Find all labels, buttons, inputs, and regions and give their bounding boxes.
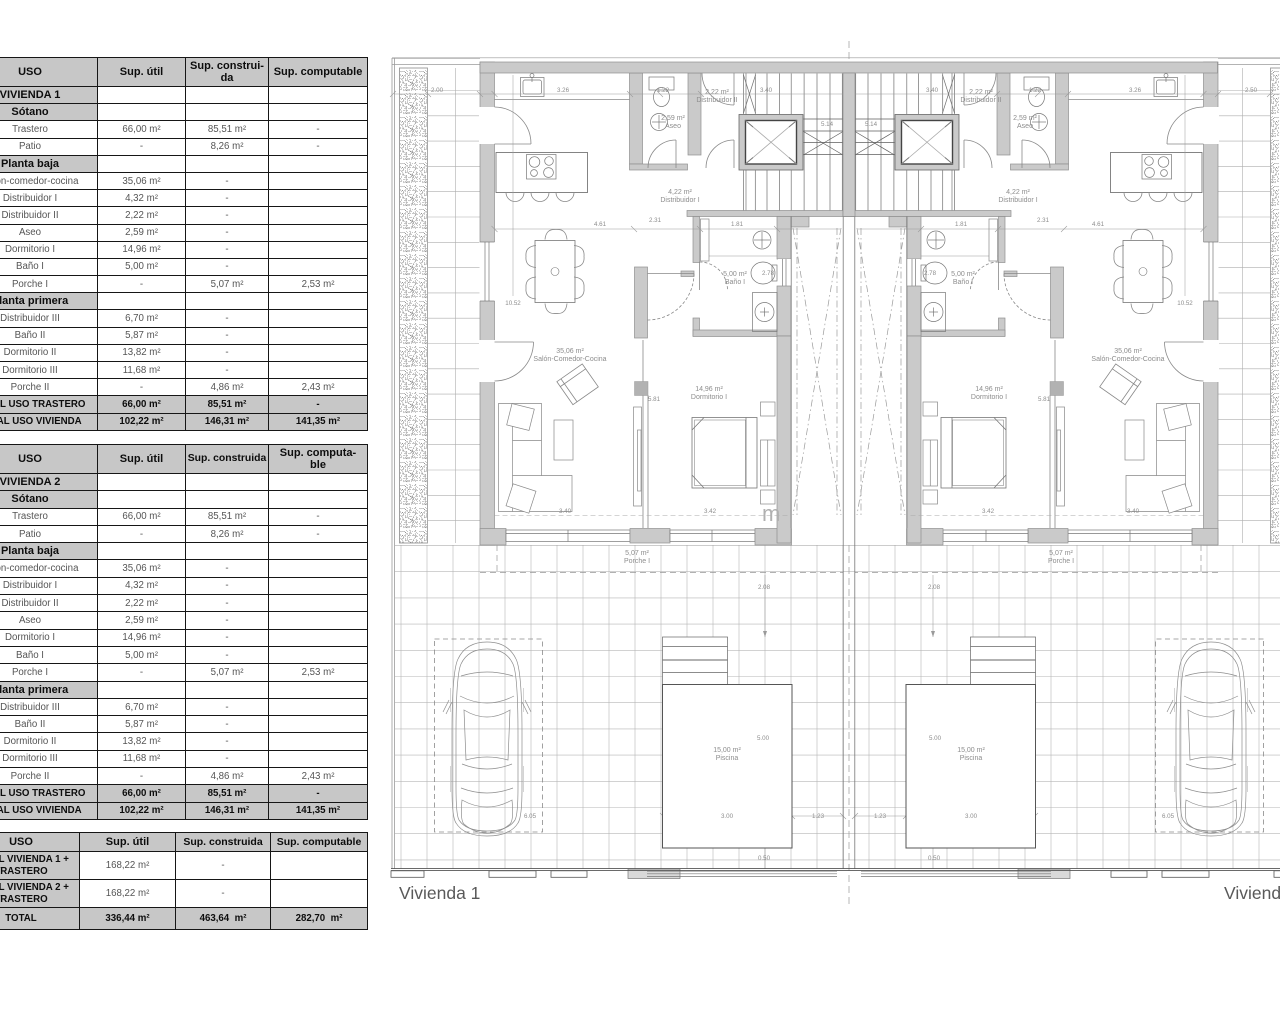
svg-text:Vivienda 2: Vivienda 2 xyxy=(1224,883,1280,903)
svg-text:15,00 m²: 15,00 m² xyxy=(713,747,741,754)
svg-text:Dormitorio I: Dormitorio I xyxy=(971,394,1007,401)
svg-text:Distribuidor I: Distribuidor I xyxy=(660,197,699,204)
svg-text:Distribuidor I: Distribuidor I xyxy=(998,197,1037,204)
svg-text:5,07 m²: 5,07 m² xyxy=(625,550,649,557)
svg-text:3.26: 3.26 xyxy=(557,87,570,94)
svg-text:1.22: 1.22 xyxy=(1029,87,1042,94)
svg-text:5.81: 5.81 xyxy=(1038,396,1051,403)
svg-text:4.61: 4.61 xyxy=(1092,221,1105,228)
svg-text:Porche I: Porche I xyxy=(624,558,650,565)
svg-text:Vivienda 1: Vivienda 1 xyxy=(399,883,480,903)
svg-text:3.26: 3.26 xyxy=(1129,87,1142,94)
svg-text:5,00 m²: 5,00 m² xyxy=(723,271,747,278)
svg-text:Baño I: Baño I xyxy=(725,279,745,286)
svg-text:14,96 m²: 14,96 m² xyxy=(695,386,723,393)
svg-text:Distribuidor II: Distribuidor II xyxy=(696,97,737,104)
svg-text:2.31: 2.31 xyxy=(649,217,662,224)
svg-text:2,59 m²: 2,59 m² xyxy=(661,115,685,122)
svg-text:3.40: 3.40 xyxy=(760,87,773,94)
svg-text:Salón-Comedor-Cocina: Salón-Comedor-Cocina xyxy=(533,356,606,363)
svg-text:14,96 m²: 14,96 m² xyxy=(975,386,1003,393)
svg-text:4,22 m²: 4,22 m² xyxy=(668,189,692,196)
svg-text:10.52: 10.52 xyxy=(1177,300,1193,307)
svg-text:2.08: 2.08 xyxy=(758,584,771,591)
svg-text:0.50: 0.50 xyxy=(758,855,771,862)
svg-text:35,06 m²: 35,06 m² xyxy=(556,348,584,355)
svg-text:2,22 m²: 2,22 m² xyxy=(705,89,729,96)
svg-text:2.78: 2.78 xyxy=(762,270,775,277)
svg-text:3.40: 3.40 xyxy=(1127,508,1140,515)
svg-text:2.08: 2.08 xyxy=(928,584,941,591)
svg-text:Aseo: Aseo xyxy=(665,123,681,130)
svg-text:2.78: 2.78 xyxy=(924,270,937,277)
svg-text:5,00 m²: 5,00 m² xyxy=(951,271,975,278)
svg-text:Distribuidor II: Distribuidor II xyxy=(960,97,1001,104)
svg-text:4,22 m²: 4,22 m² xyxy=(1006,189,1030,196)
svg-text:Porche I: Porche I xyxy=(1048,558,1074,565)
svg-text:2.00: 2.00 xyxy=(431,87,444,94)
svg-text:10.52: 10.52 xyxy=(505,300,521,307)
svg-text:3.40: 3.40 xyxy=(926,87,939,94)
svg-text:1.22: 1.22 xyxy=(657,87,670,94)
svg-text:35,06 m²: 35,06 m² xyxy=(1114,348,1142,355)
svg-text:6.05: 6.05 xyxy=(1162,813,1175,820)
svg-text:6.05: 6.05 xyxy=(524,813,537,820)
svg-text:m: m xyxy=(762,501,780,526)
svg-text:15,00 m²: 15,00 m² xyxy=(957,747,985,754)
svg-text:5.00: 5.00 xyxy=(757,735,770,742)
svg-text:Piscina: Piscina xyxy=(960,755,983,762)
svg-text:Piscina: Piscina xyxy=(716,755,739,762)
svg-text:2,59 m²: 2,59 m² xyxy=(1013,115,1037,122)
svg-text:Aseo: Aseo xyxy=(1017,123,1033,130)
svg-text:5.81: 5.81 xyxy=(648,396,661,403)
svg-text:5.00: 5.00 xyxy=(929,735,942,742)
svg-text:Dormitorio I: Dormitorio I xyxy=(691,394,727,401)
svg-text:3.00: 3.00 xyxy=(721,813,734,820)
svg-text:1.23: 1.23 xyxy=(812,813,825,820)
svg-text:5.14: 5.14 xyxy=(865,121,878,128)
svg-text:2,22 m²: 2,22 m² xyxy=(969,89,993,96)
svg-text:Salón-Comedor-Cocina: Salón-Comedor-Cocina xyxy=(1091,356,1164,363)
svg-text:3.00: 3.00 xyxy=(965,813,978,820)
svg-text:1.23: 1.23 xyxy=(874,813,887,820)
svg-text:1.81: 1.81 xyxy=(955,221,968,228)
svg-text:3.40: 3.40 xyxy=(559,508,572,515)
svg-text:5.14: 5.14 xyxy=(821,121,834,128)
svg-text:4.61: 4.61 xyxy=(594,221,607,228)
svg-text:2.31: 2.31 xyxy=(1037,217,1050,224)
svg-text:3.42: 3.42 xyxy=(704,508,717,515)
svg-text:0.50: 0.50 xyxy=(928,855,941,862)
svg-text:3.42: 3.42 xyxy=(982,508,995,515)
svg-text:1.81: 1.81 xyxy=(731,221,744,228)
svg-text:2.50: 2.50 xyxy=(1245,87,1258,94)
svg-text:Baño I: Baño I xyxy=(953,279,973,286)
svg-text:5,07 m²: 5,07 m² xyxy=(1049,550,1073,557)
